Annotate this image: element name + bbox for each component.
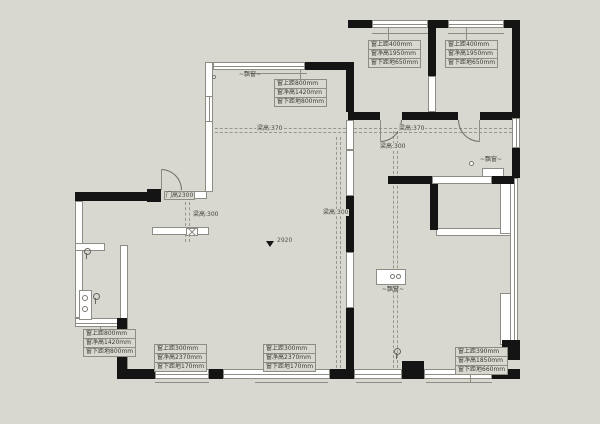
dimension-line: [155, 382, 209, 383]
wall-corner-block: [147, 189, 161, 202]
annotation-line: 窗下距地650mm: [445, 58, 498, 68]
window-right-upper: [512, 118, 520, 148]
wall-segment: [428, 20, 448, 28]
beam-dashed-line: [205, 132, 346, 133]
wall-segment: [346, 196, 354, 252]
wall-segment: [346, 308, 354, 378]
window-bedroom-left: [372, 20, 428, 28]
wall-bedroom-divider-lower: [428, 76, 436, 112]
window-annotation-bedroom-left: 窗上距400mm 窗净高1950mm 窗下距地650mm: [368, 41, 421, 68]
bay-window-label: ~飘窗~: [238, 71, 262, 78]
dimension-line: [372, 33, 428, 34]
door-leaf-entry: [161, 169, 162, 190]
basin-icon: [396, 274, 401, 279]
bay-window-label: ~飘窗~: [381, 286, 405, 293]
wall-spine-lower: [346, 252, 354, 308]
basin-icon: [390, 274, 395, 279]
wall-spine-opening: [346, 150, 354, 196]
wall-segment: [430, 184, 438, 230]
beam-height-label: 梁高:370: [398, 125, 425, 132]
wall-segment: [348, 20, 372, 28]
window-annotation-bottom-middle: 窗上距300mm 窗净高2370mm 窗下距地170mm: [263, 345, 316, 372]
wall-segment: [402, 361, 424, 379]
annotation-line: 窗下距地170mm: [154, 362, 207, 372]
annotation-line: 窗下距地650mm: [368, 58, 421, 68]
wall-segment: [75, 192, 151, 201]
annotation-line: 窗下距地800mm: [83, 347, 136, 357]
beam-dashed-line: [336, 137, 337, 368]
dimension-line: [255, 382, 328, 383]
window-bottom-hall: [354, 369, 402, 379]
dimension-line: [426, 382, 492, 383]
wall-segment: [492, 176, 514, 184]
beam-dashed-line: [189, 202, 190, 242]
plumbing-icon: [84, 248, 90, 259]
window-annotation-bedroom-right: 窗上距400mm 窗净高1950mm 窗下距地650mm: [445, 41, 498, 68]
window-left-small: [205, 96, 213, 122]
wall-segment: [512, 20, 520, 118]
wall-segment: [348, 112, 380, 120]
wall-bath-right: [432, 176, 492, 184]
bay-window-label: ~飘窗~: [479, 156, 503, 163]
sill-right-upper: [500, 182, 511, 234]
door-arc-bedroom-right: [458, 120, 480, 142]
annotation-line: 窗下距地800mm: [274, 97, 327, 107]
level-marker-value: 2920: [276, 237, 293, 244]
window-annotation-bottom-right: 窗上距390mm 窗净高1850mm 窗下距地660mm: [455, 348, 508, 375]
floor-plan-canvas: 窗上距800mm 窗净高1420mm 窗下距地800mm 窗上距400mm 窗净…: [0, 0, 600, 424]
window-bedroom-right: [448, 20, 504, 28]
window-bay-top: [213, 62, 305, 70]
wall-left-room-top: [152, 227, 209, 235]
drain-icon: [394, 348, 400, 359]
beam-dashed-line: [354, 132, 512, 133]
door-leaf-bedroom-left: [380, 120, 381, 142]
wall-spine-upper: [346, 120, 354, 150]
window-annotation-kitchen: 窗上距800mm 窗净高1420mm 窗下距地800mm: [83, 330, 136, 357]
window-annotation-bay-top: 窗上距800mm 窗净高1420mm 窗下距地800mm: [274, 80, 327, 107]
beam-dashed-line: [340, 137, 341, 368]
plumbing-icon: [93, 293, 99, 304]
wall-living-left: [205, 62, 213, 192]
wall-bedroom-divider: [428, 28, 436, 76]
point-marker-icon: [212, 75, 216, 79]
wall-segment: [330, 369, 354, 379]
column-icon: [186, 228, 198, 236]
wall-segment: [305, 62, 348, 70]
door-leaf-bedroom-right: [479, 120, 480, 142]
annotation-line: 窗下距地170mm: [263, 362, 316, 372]
wall-segment: [346, 62, 354, 112]
door-height-label: 门高2300: [164, 191, 195, 200]
sink-icon: [82, 306, 88, 312]
wall-segment: [117, 369, 155, 379]
beam-height-label: 梁高:300: [379, 143, 406, 150]
wall-segment: [512, 148, 520, 178]
door-arc-entry: [161, 169, 182, 190]
dimension-line: [356, 382, 402, 383]
dimension-line: [448, 33, 504, 34]
wall-segment: [402, 112, 436, 120]
wall-segment: [209, 369, 223, 379]
level-marker-icon: [266, 241, 274, 247]
beam-dashed-line: [354, 128, 512, 129]
wall-segment: [388, 176, 432, 184]
sill-right-lower: [500, 293, 511, 345]
beam-dashed-line: [185, 202, 186, 242]
wall-segment: [436, 112, 458, 120]
beam-dashed-line: [397, 131, 398, 368]
beam-dashed-line: [393, 131, 394, 368]
annotation-line: 窗下距地660mm: [455, 365, 508, 375]
sink-icon: [82, 295, 88, 301]
beam-height-label: 梁高:300: [192, 211, 219, 218]
window-annotation-bottom-left: 窗上距300mm 窗净高2370mm 窗下距地170mm: [154, 345, 207, 372]
wall-segment: [480, 112, 512, 120]
beam-height-label: 梁高:370: [256, 125, 283, 132]
beam-height-label: 梁高:300: [322, 209, 349, 216]
point-marker-icon: [469, 161, 474, 166]
window-right-bay-strip: [510, 178, 518, 343]
